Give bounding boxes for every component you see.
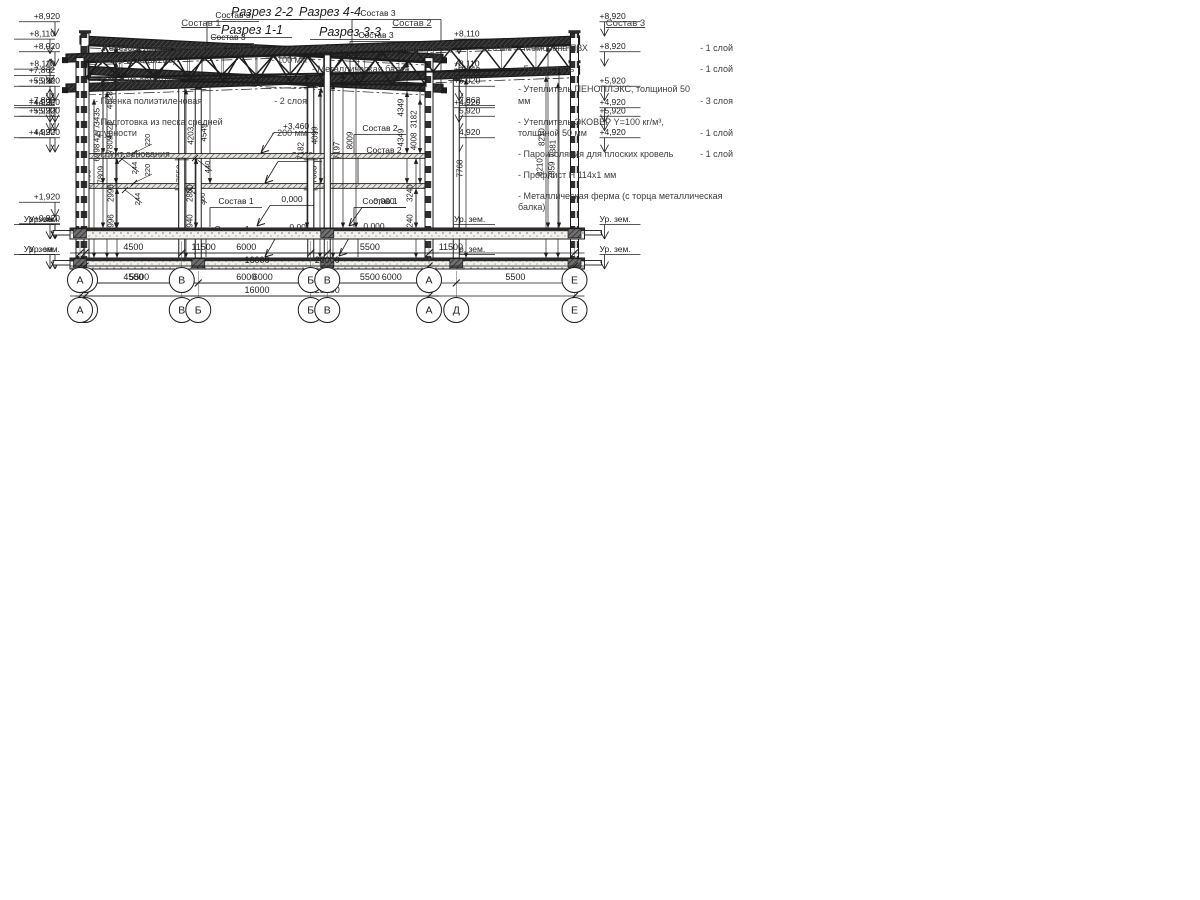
legend-item-text: - Геотекстиль [518, 64, 692, 76]
legend-item-text: - Мембрана ПВХ [518, 43, 692, 55]
legend-item: - Грунт основания [95, 149, 307, 161]
legend-item: - Пароизоляция для плоских кровель- 1 сл… [518, 149, 733, 161]
span-dim-label: 11500 [191, 242, 215, 252]
legend-item: - Пленка полиэтиленовая- 2 слоя [95, 96, 307, 108]
axis-bubble-label: Е [571, 305, 578, 317]
legend-item: - Подготовка из песка средней крупности-… [95, 117, 307, 140]
legend-column-2: Состав 2- Сборные ж/б плиты перекрытия- … [312, 18, 512, 84]
span-dim-label: 11500 [439, 242, 463, 252]
axis-bubble-label: Д [453, 305, 460, 317]
legend-item: - Металлическая балка [312, 64, 512, 76]
legend-item-text: - Металлическая балка [312, 64, 504, 76]
legend-item-text: - Пароизоляция для плоских кровель [518, 149, 692, 161]
drawing-sheet: 4277462842034549409943494008299629403240… [0, 0, 1200, 900]
axis-bubble-label: Б [195, 305, 202, 317]
legend-item-text: - Пленка полиэтиленовая [95, 96, 266, 108]
legend-item-value: - 200 мм [272, 128, 307, 140]
legend-column-1: Состав 1- Железобетонная монолитная плит… [95, 18, 307, 170]
legend-column-3: Состав 3- Мембрана ПВХ- 1 слой- Геотекст… [518, 18, 733, 223]
axis-bubbles: АВЕ [68, 268, 588, 293]
legend-item-value: - 100 мм [272, 55, 307, 67]
legend-item: - Металлическая ферма (с торца металличе… [518, 191, 733, 214]
legend-item-text: - Утеплитель ПЕНОПЛЭКС, толщиной 50 мм [518, 84, 692, 107]
legend-item-text: - Подготовка из песка средней крупности [95, 117, 264, 140]
legend-item-text: - Железобетонная монолитная плита из бет… [95, 43, 264, 66]
axis-bubble-label: В [324, 305, 331, 317]
legend-item-value: - 1 слой [700, 43, 733, 55]
axis-bubble-label: А [76, 275, 83, 287]
legend-title: Состав 1 [95, 18, 307, 29]
materials-legend: Состав 1- Железобетонная монолитная плит… [0, 0, 1200, 240]
legend-item-text: - Сетка из арматуры [95, 75, 299, 87]
legend-item-text: - Грунт основания [95, 149, 299, 161]
legend-item-value: - 1 слой [700, 128, 733, 140]
legend-item-text: - Сборные ж/б плиты перекрытия [312, 43, 469, 55]
axis-bubble-label: А [76, 305, 83, 317]
total-dim-label: 23000 [315, 255, 340, 265]
legend-item: - Железобетонная монолитная плита из бет… [95, 43, 307, 66]
legend-item-value: - 1 слой [700, 64, 733, 76]
legend-item: - Мембрана ПВХ- 1 слой [518, 43, 733, 55]
legend-item: - Геотекстиль- 1 слой [518, 64, 733, 76]
legend-item-value: - 220 мм [477, 43, 512, 55]
legend-item: - Сетка из арматуры [95, 75, 307, 87]
legend-item-value: - 3 слоя [700, 96, 733, 108]
legend-item-value: - 2 слоя [274, 96, 307, 108]
legend-title: Состав 3 [518, 18, 733, 29]
axis-bubble-label: Е [571, 275, 578, 287]
legend-item: - Профлист Н 114х1 мм [518, 170, 733, 182]
legend-item: - Утеплитель ЭКОВЕР Y=100 кг/м³, толщино… [518, 117, 733, 140]
dimension-chain: 115001150023000 [70, 241, 585, 271]
legend-item-text: - Профлист Н 114х1 мм [518, 170, 725, 182]
axis-bubble-label: В [324, 275, 331, 287]
legend-item: - Утеплитель ПЕНОПЛЭКС, толщиной 50 мм- … [518, 84, 733, 107]
legend-title: Состав 2 [312, 18, 512, 29]
legend-item-value: - 1 слой [700, 149, 733, 161]
legend-item: - Сборные ж/б плиты перекрытия- 220 мм [312, 43, 512, 55]
legend-item-text: - Металлическая ферма (с торца металличе… [518, 191, 725, 214]
legend-item-text: - Утеплитель ЭКОВЕР Y=100 кг/м³, толщино… [518, 117, 692, 140]
